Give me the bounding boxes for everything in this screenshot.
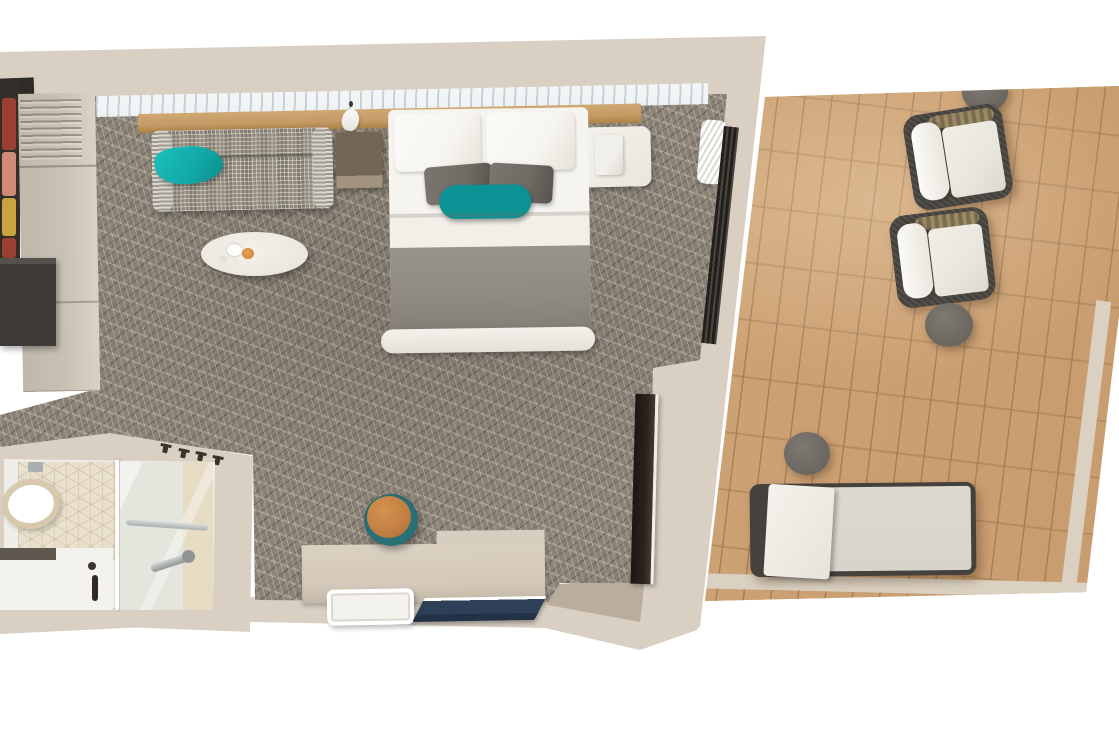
stool-leather-top <box>367 496 411 538</box>
pendant-light <box>340 101 362 135</box>
glass-sheen <box>120 462 213 610</box>
glass-cup <box>231 259 239 266</box>
foot-bench <box>381 327 595 354</box>
lounger-backrest <box>763 484 834 580</box>
dark-cabinet <box>0 258 56 346</box>
oval-coffee-table <box>201 232 308 276</box>
hanging-garment <box>2 198 16 236</box>
candle <box>242 248 254 259</box>
sofa-arm <box>312 127 334 208</box>
glass-cup <box>219 255 228 263</box>
pendant-shade <box>340 107 361 132</box>
white-pillow <box>394 113 481 172</box>
hanging-garment <box>2 98 16 150</box>
open-closet <box>0 80 20 260</box>
side-table <box>335 132 382 189</box>
nightstand-box <box>595 135 624 176</box>
round-side-table-middle <box>925 303 973 347</box>
wardrobe <box>18 93 100 392</box>
wardrobe-door-seam <box>19 165 96 168</box>
hanging-garment <box>2 238 16 258</box>
desk-step <box>437 530 545 545</box>
faucet <box>92 575 98 601</box>
gray-blanket <box>390 245 591 332</box>
wicker-armchair-1 <box>901 102 1015 212</box>
floor-plan <box>0 0 1119 746</box>
round-side-table-low <box>784 432 830 475</box>
wardrobe-louver-doors <box>20 99 82 162</box>
armchair-seat-cushion <box>941 120 1006 199</box>
sun-lounger <box>750 482 977 577</box>
armchair-seat-cushion <box>927 223 989 297</box>
shower-glass-divider <box>115 460 119 610</box>
tray <box>327 588 415 626</box>
shower-head <box>182 550 195 563</box>
double-bed <box>388 107 591 350</box>
pendant-cord <box>349 101 353 107</box>
wicker-armchair-2 <box>888 205 998 309</box>
hanging-garment <box>2 152 16 196</box>
vanity-sink <box>0 548 113 610</box>
glass-shower <box>120 462 213 610</box>
vanity-edge <box>0 548 56 560</box>
stool <box>364 494 418 546</box>
faucet-knob <box>88 562 96 570</box>
dish <box>227 244 242 256</box>
navy-folder <box>412 596 546 622</box>
white-pillow <box>486 111 575 170</box>
flush-plate <box>28 462 43 472</box>
